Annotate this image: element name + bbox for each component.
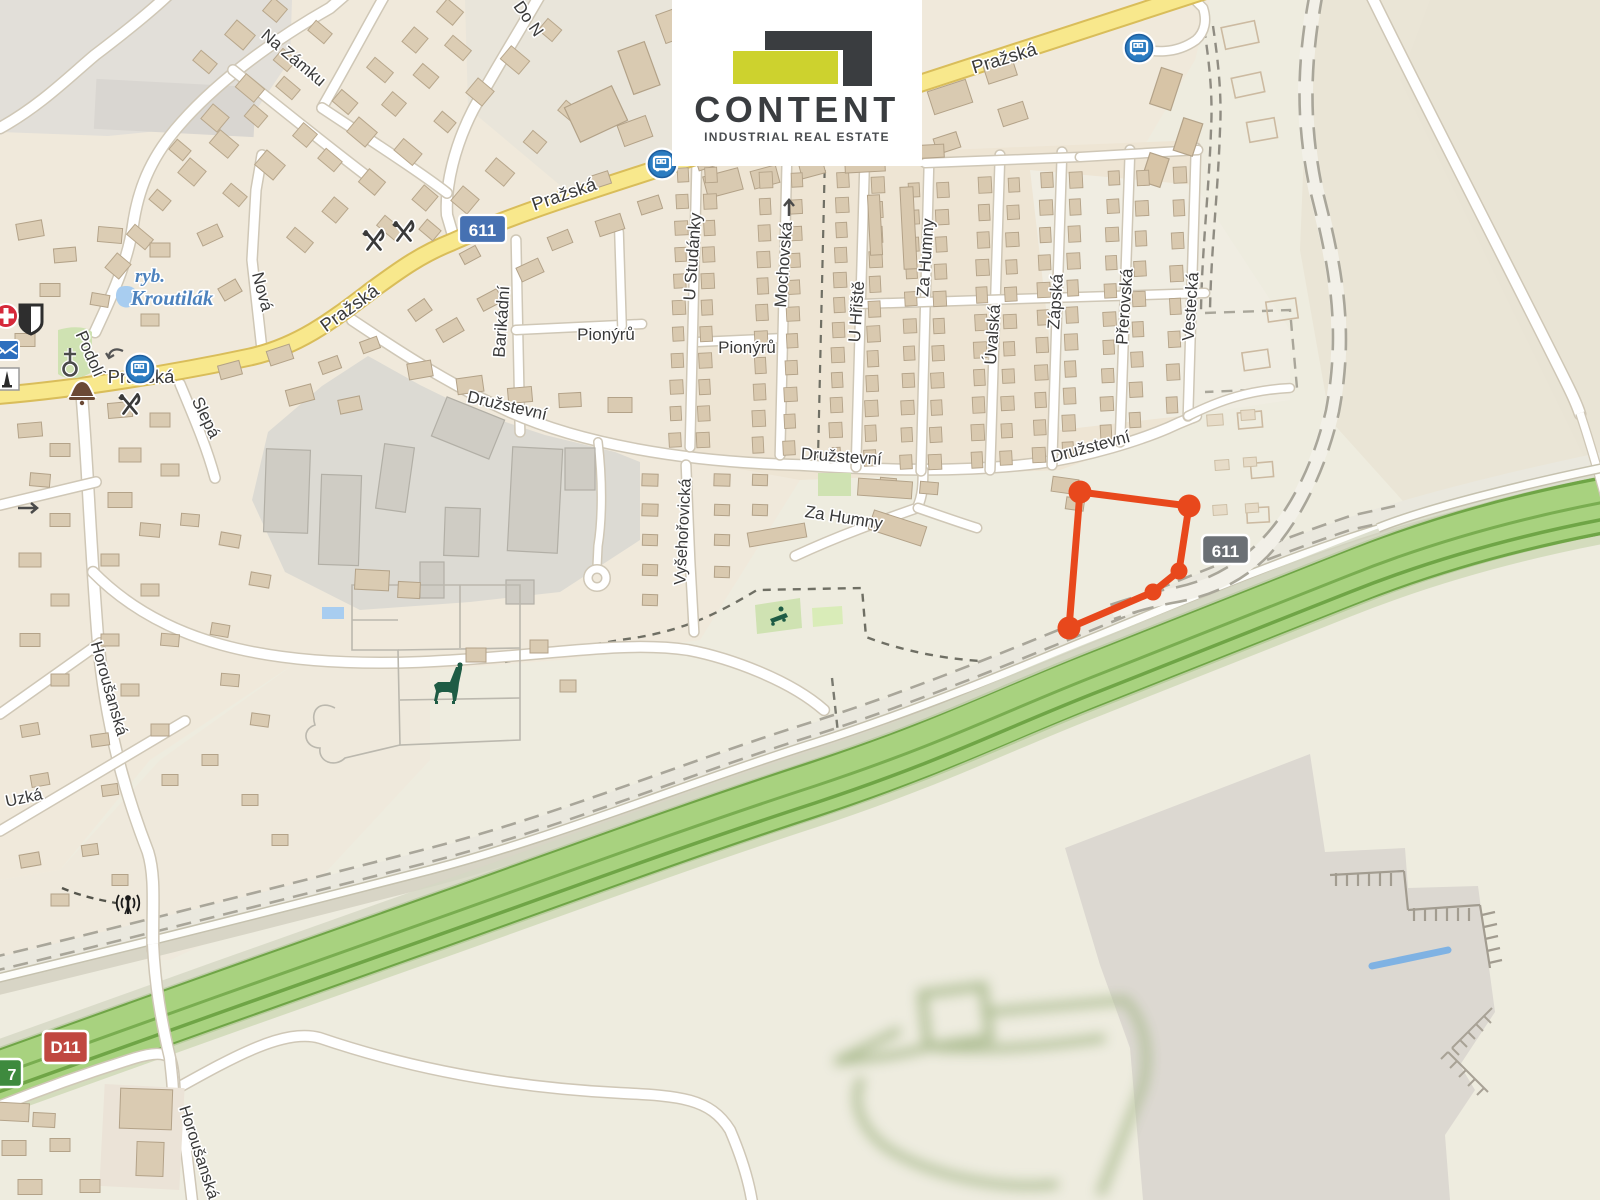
svg-text:Pionýrů: Pionýrů: [718, 338, 776, 357]
svg-text:7: 7: [8, 1067, 17, 1084]
svg-text:Zápská: Zápská: [1044, 273, 1067, 330]
svg-text:611: 611: [469, 221, 496, 240]
svg-text:611: 611: [1212, 542, 1239, 561]
svg-text:ryb.: ryb.: [135, 266, 165, 287]
svg-text:Pionýrů: Pionýrů: [577, 325, 635, 344]
svg-text:INDUSTRIAL REAL ESTATE: INDUSTRIAL REAL ESTATE: [704, 130, 890, 144]
svg-text:Kroutilák: Kroutilák: [130, 286, 214, 310]
svg-text:D11: D11: [50, 1038, 80, 1057]
svg-text:CONTENT: CONTENT: [694, 89, 900, 130]
